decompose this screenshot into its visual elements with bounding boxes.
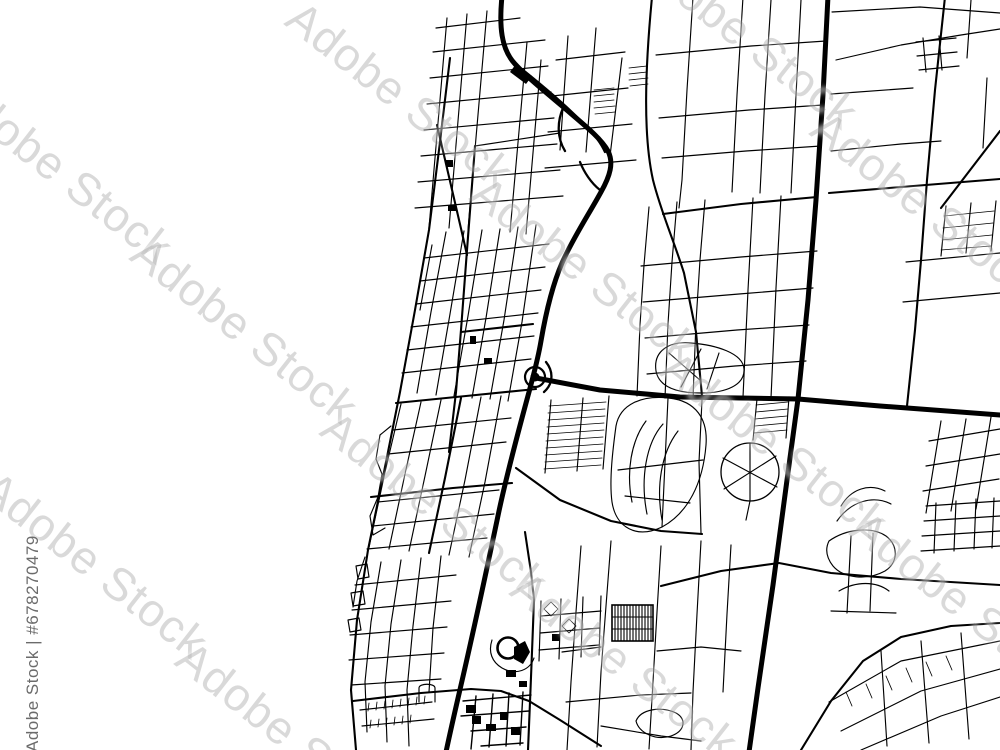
ring-roads: [498, 367, 780, 659]
map-feature-buildings: [446, 64, 560, 735]
watermark-stock-id: Adobe Stock | #678270479: [24, 535, 41, 750]
stock-map-image: Adobe StockAdobe StockAdobe StockAdobe S…: [0, 0, 1000, 750]
road-layer-arterials: [351, 0, 1000, 750]
city-map-svg: [0, 0, 1000, 750]
road-layer-lanes: [461, 692, 531, 749]
map-feature-railyard-hatch: [612, 605, 653, 641]
